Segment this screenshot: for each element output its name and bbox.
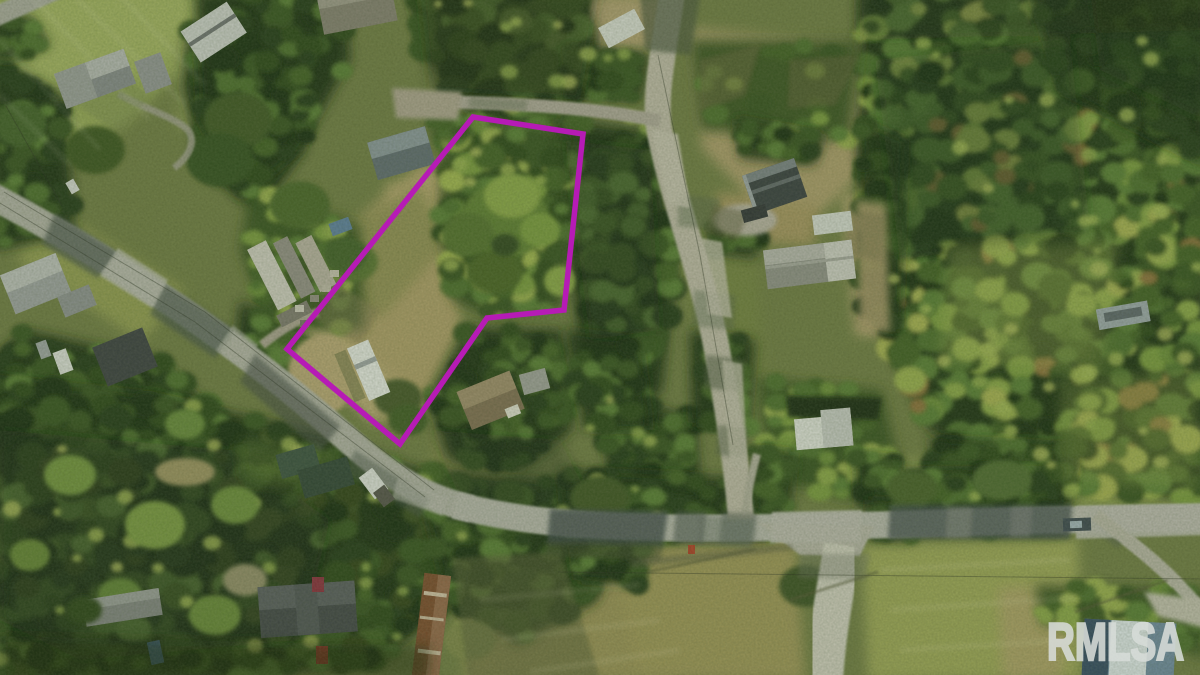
svg-text:RMLSA: RMLSA xyxy=(1047,613,1184,672)
